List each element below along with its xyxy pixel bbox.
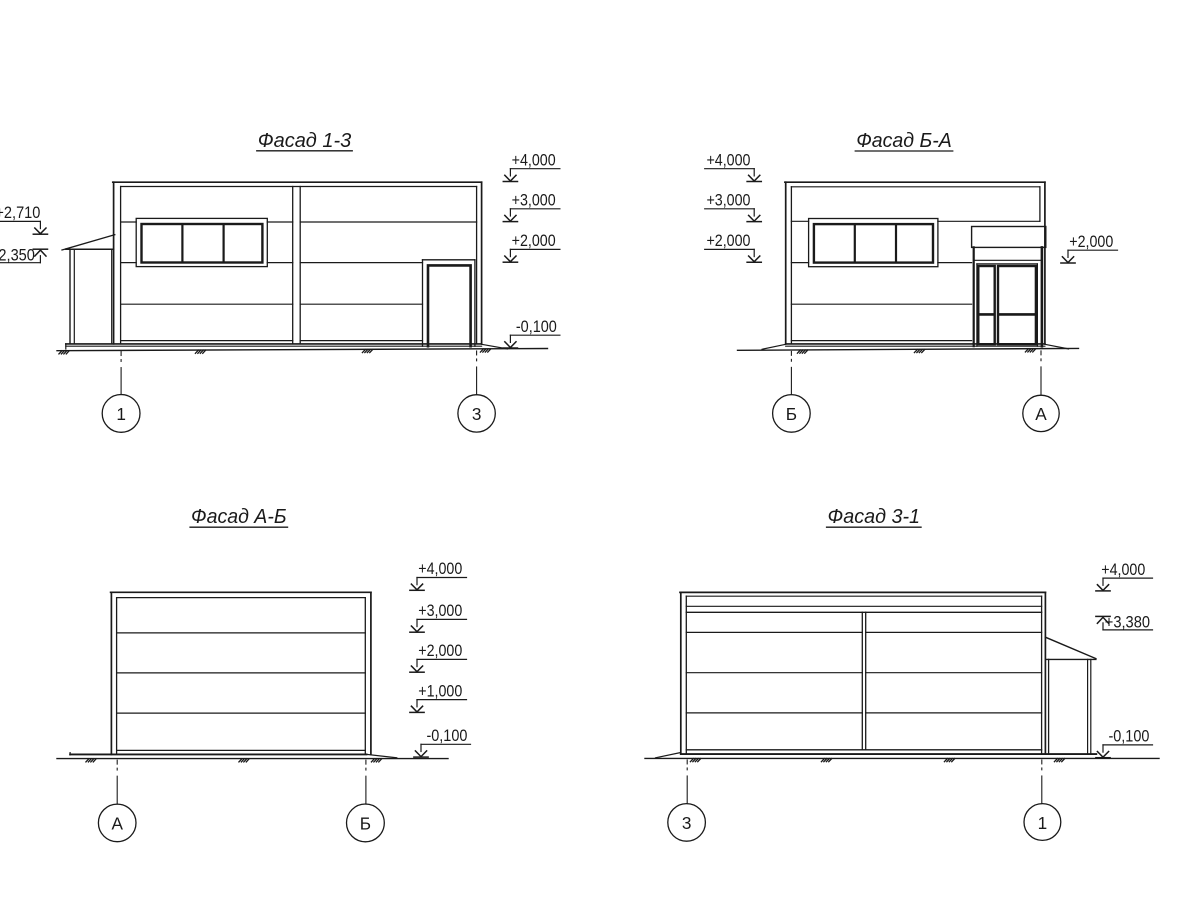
svg-text:1: 1: [116, 404, 126, 424]
svg-text:+3,000: +3,000: [512, 191, 556, 210]
svg-text:-0,100: -0,100: [516, 317, 557, 336]
svg-text:1: 1: [1038, 813, 1048, 833]
svg-text:-0,100: -0,100: [1108, 727, 1149, 746]
svg-text:+2,000: +2,000: [512, 231, 556, 250]
svg-text:+2,710: +2,710: [0, 203, 40, 222]
svg-text:-0,100: -0,100: [426, 726, 467, 745]
svg-text:3: 3: [682, 813, 692, 833]
svg-text:+3,380: +3,380: [1105, 613, 1150, 632]
svg-text:Фасад 3-1: Фасад 3-1: [828, 506, 921, 528]
svg-text:+4,000: +4,000: [706, 150, 750, 169]
svg-text:Фасад 1-3: Фасад 1-3: [258, 130, 352, 152]
svg-text:+3,000: +3,000: [418, 601, 462, 620]
svg-text:Б: Б: [360, 814, 371, 834]
svg-text:+2,000: +2,000: [1069, 232, 1113, 251]
svg-text:+1,000: +1,000: [418, 681, 462, 700]
svg-text:+2,000: +2,000: [706, 231, 750, 250]
svg-text:Фасад А-Б: Фасад А-Б: [191, 506, 287, 528]
svg-text:+4,000: +4,000: [512, 150, 556, 169]
svg-text:А: А: [1035, 404, 1047, 424]
svg-text:+4,000: +4,000: [418, 559, 462, 578]
svg-text:Б: Б: [786, 404, 797, 424]
svg-text:+4,000: +4,000: [1101, 560, 1145, 579]
svg-text:3: 3: [472, 404, 482, 424]
svg-text:+3,000: +3,000: [706, 191, 750, 210]
svg-text:Фасад Б-А: Фасад Б-А: [856, 130, 952, 152]
svg-text:+2,000: +2,000: [418, 641, 462, 660]
svg-text:+2,350: +2,350: [0, 245, 35, 264]
svg-text:А: А: [111, 814, 123, 834]
